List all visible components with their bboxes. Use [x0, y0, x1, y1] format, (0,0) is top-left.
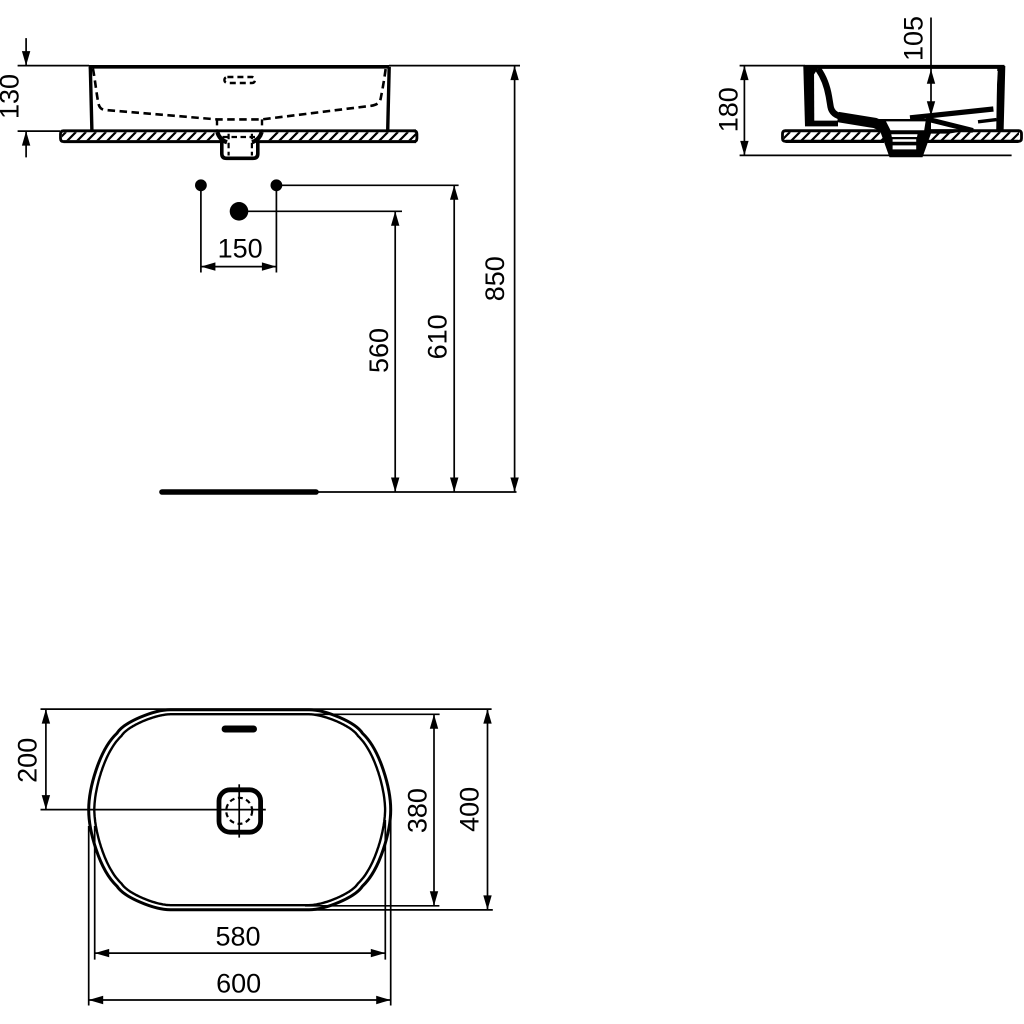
svg-text:130: 130: [0, 74, 25, 119]
svg-text:610: 610: [422, 314, 452, 359]
svg-text:380: 380: [402, 788, 432, 833]
svg-text:150: 150: [218, 234, 263, 264]
svg-text:580: 580: [215, 922, 260, 952]
svg-text:105: 105: [899, 16, 929, 61]
svg-text:600: 600: [216, 969, 261, 999]
svg-text:200: 200: [12, 738, 42, 783]
svg-text:400: 400: [454, 787, 484, 832]
svg-text:560: 560: [364, 328, 394, 373]
svg-text:180: 180: [714, 87, 744, 132]
svg-text:850: 850: [480, 256, 510, 301]
